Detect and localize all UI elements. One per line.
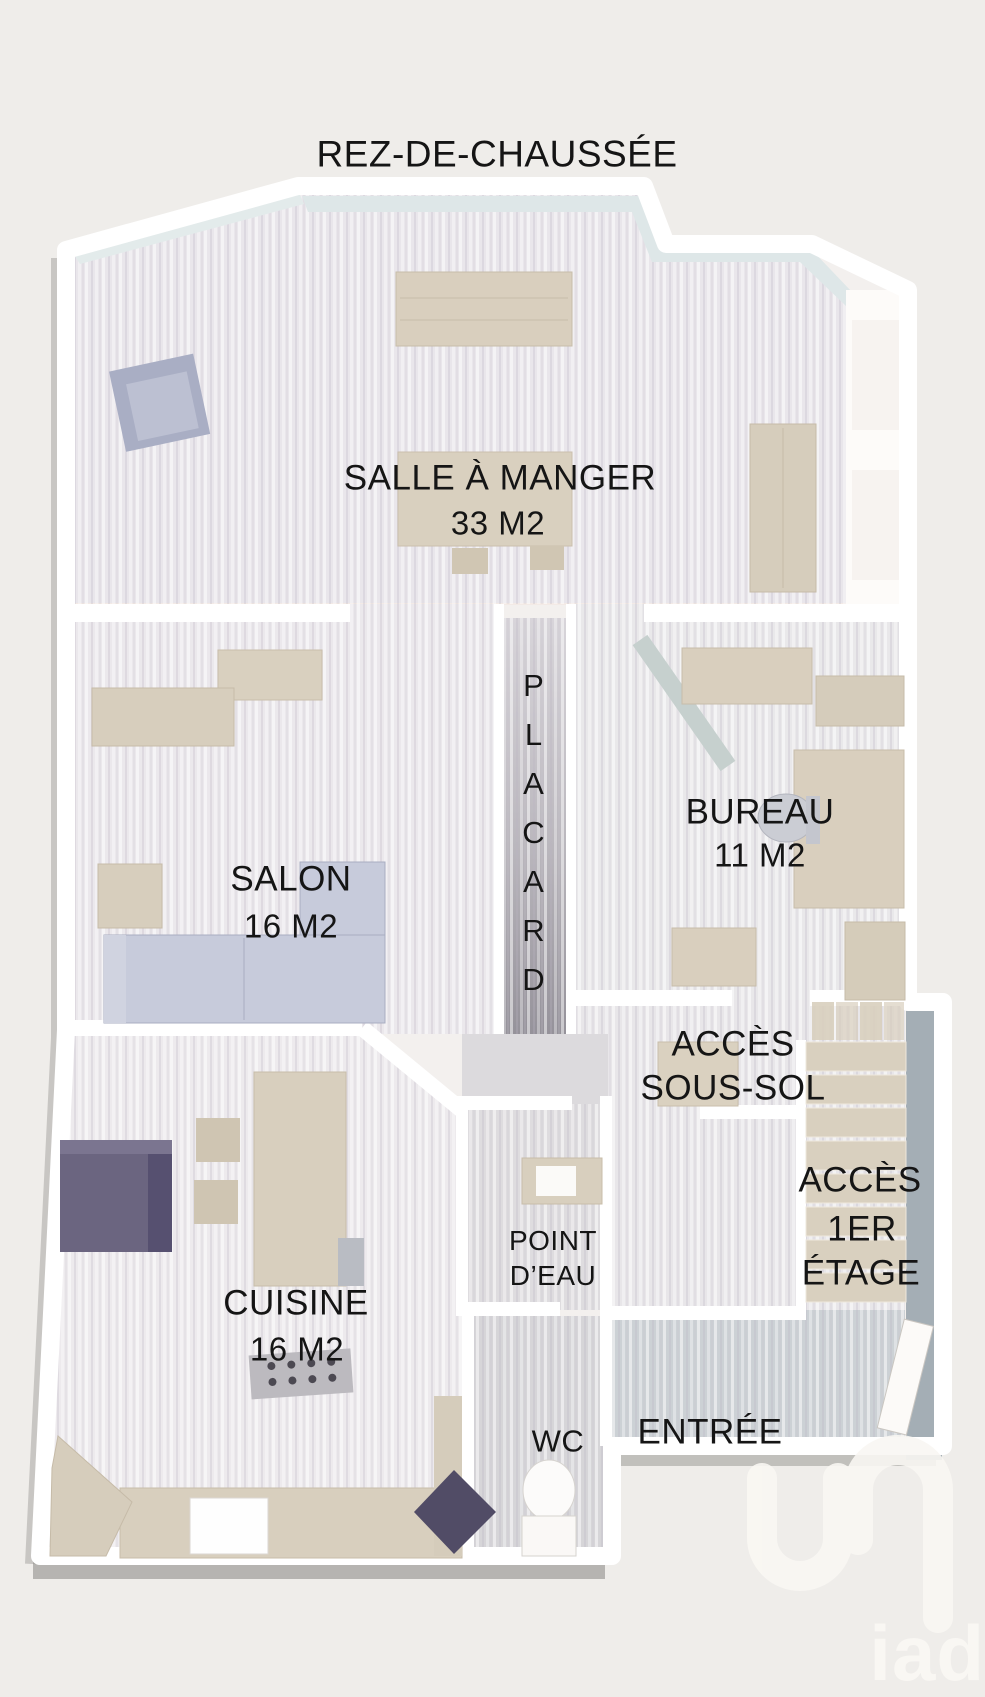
water-point-furniture: [522, 1158, 602, 1204]
label-bureau: BUREAU: [686, 795, 835, 830]
label-acces-etage-line1: ACCÈS: [798, 1163, 921, 1198]
sink: [190, 1498, 268, 1554]
floor-plan-page: REZ-DE-CHAUSSÉE SALLE À MANGER 33 M2 SAL…: [0, 0, 985, 1697]
label-acces-sous-sol-line2: SOUS-SOL: [641, 1071, 826, 1106]
stool: [194, 1180, 238, 1224]
kitchen-counter: [120, 1488, 462, 1558]
wardrobe: [816, 676, 904, 726]
dining-chair: [530, 546, 564, 570]
floor-title: REZ-DE-CHAUSSÉE: [316, 136, 677, 173]
kitchen-chair: [338, 1238, 364, 1286]
label-cuisine: CUISINE: [223, 1286, 368, 1321]
label-salon-area: 16 M2: [244, 910, 338, 943]
window: [852, 470, 900, 580]
cabinet: [845, 922, 905, 1000]
label-placard: PLACARD: [515, 668, 551, 1011]
label-acces-etage-line2: 1ER: [827, 1212, 897, 1247]
window: [852, 320, 900, 430]
label-salle-a-manger: SALLE À MANGER: [344, 461, 656, 496]
side-table: [98, 864, 162, 928]
iad-watermark-text: iad: [869, 1608, 985, 1697]
wardrobe: [682, 648, 812, 704]
stool: [196, 1118, 240, 1162]
tv-stand: [92, 688, 234, 746]
sideboard: [396, 272, 572, 346]
floor-plan-rendering: [0, 0, 985, 1697]
dining-chair: [452, 548, 488, 574]
armchair: [109, 354, 210, 452]
cabinet: [672, 928, 756, 986]
basin: [536, 1166, 576, 1196]
label-salle-a-manger-area: 33 M2: [451, 507, 545, 540]
label-salon: SALON: [230, 862, 351, 897]
kitchen-island: [254, 1072, 346, 1286]
label-wc: WC: [532, 1426, 585, 1457]
toilet: [522, 1460, 576, 1556]
label-point-eau-line2: D’EAU: [510, 1262, 597, 1290]
label-acces-sous-sol-line1: ACCÈS: [671, 1027, 794, 1062]
label-entree: ENTRÉE: [638, 1415, 783, 1450]
label-point-eau-line1: POINT: [509, 1227, 597, 1255]
iad-logo-watermark: [762, 1450, 938, 1618]
label-acces-etage-line3: ÉTAGE: [802, 1256, 921, 1291]
label-bureau-area: 11 M2: [714, 839, 806, 872]
label-cuisine-area: 16 M2: [250, 1333, 344, 1366]
